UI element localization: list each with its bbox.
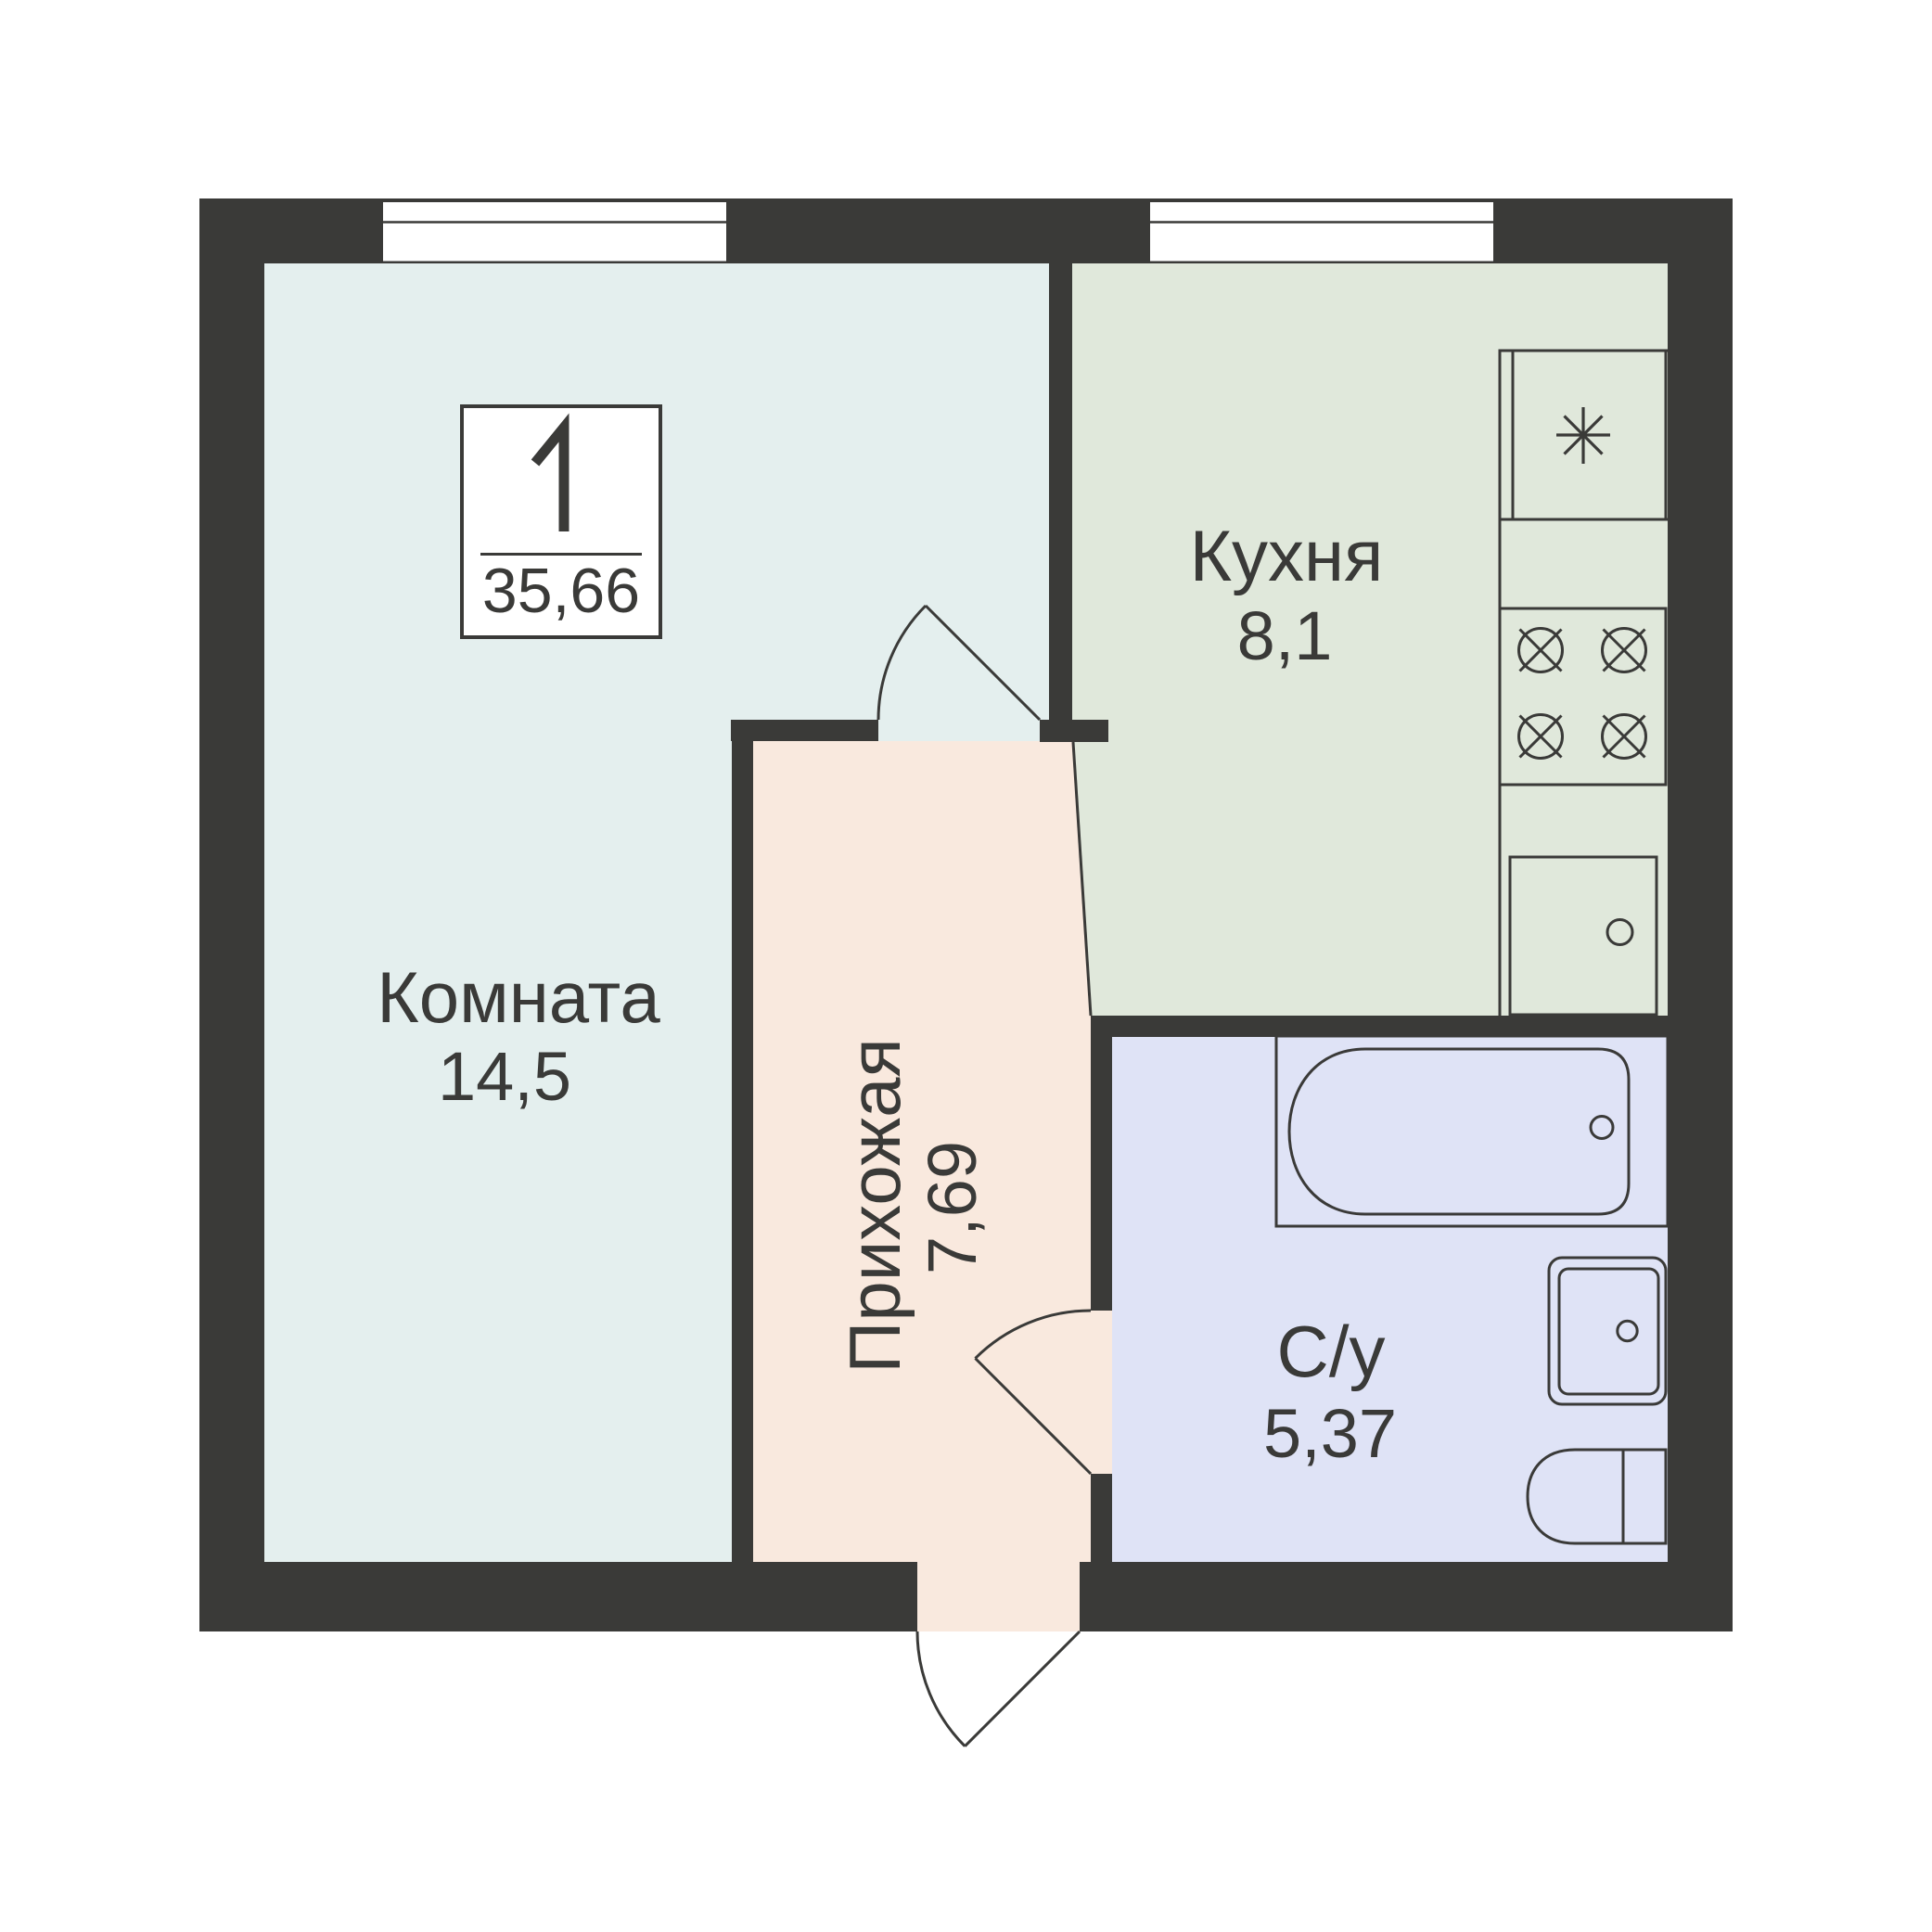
svg-text:8,1: 8,1 xyxy=(1237,597,1333,674)
svg-text:Комната: Комната xyxy=(377,956,660,1038)
svg-text:7,69: 7,69 xyxy=(914,1141,991,1274)
svg-text:Прихожая: Прихожая xyxy=(834,1038,915,1373)
svg-text:14,5: 14,5 xyxy=(438,1038,571,1115)
svg-text:Кухня: Кухня xyxy=(1190,515,1384,596)
svg-text:5,37: 5,37 xyxy=(1263,1395,1397,1472)
svg-text:35,66: 35,66 xyxy=(482,556,640,626)
svg-text:С/у: С/у xyxy=(1277,1311,1386,1392)
